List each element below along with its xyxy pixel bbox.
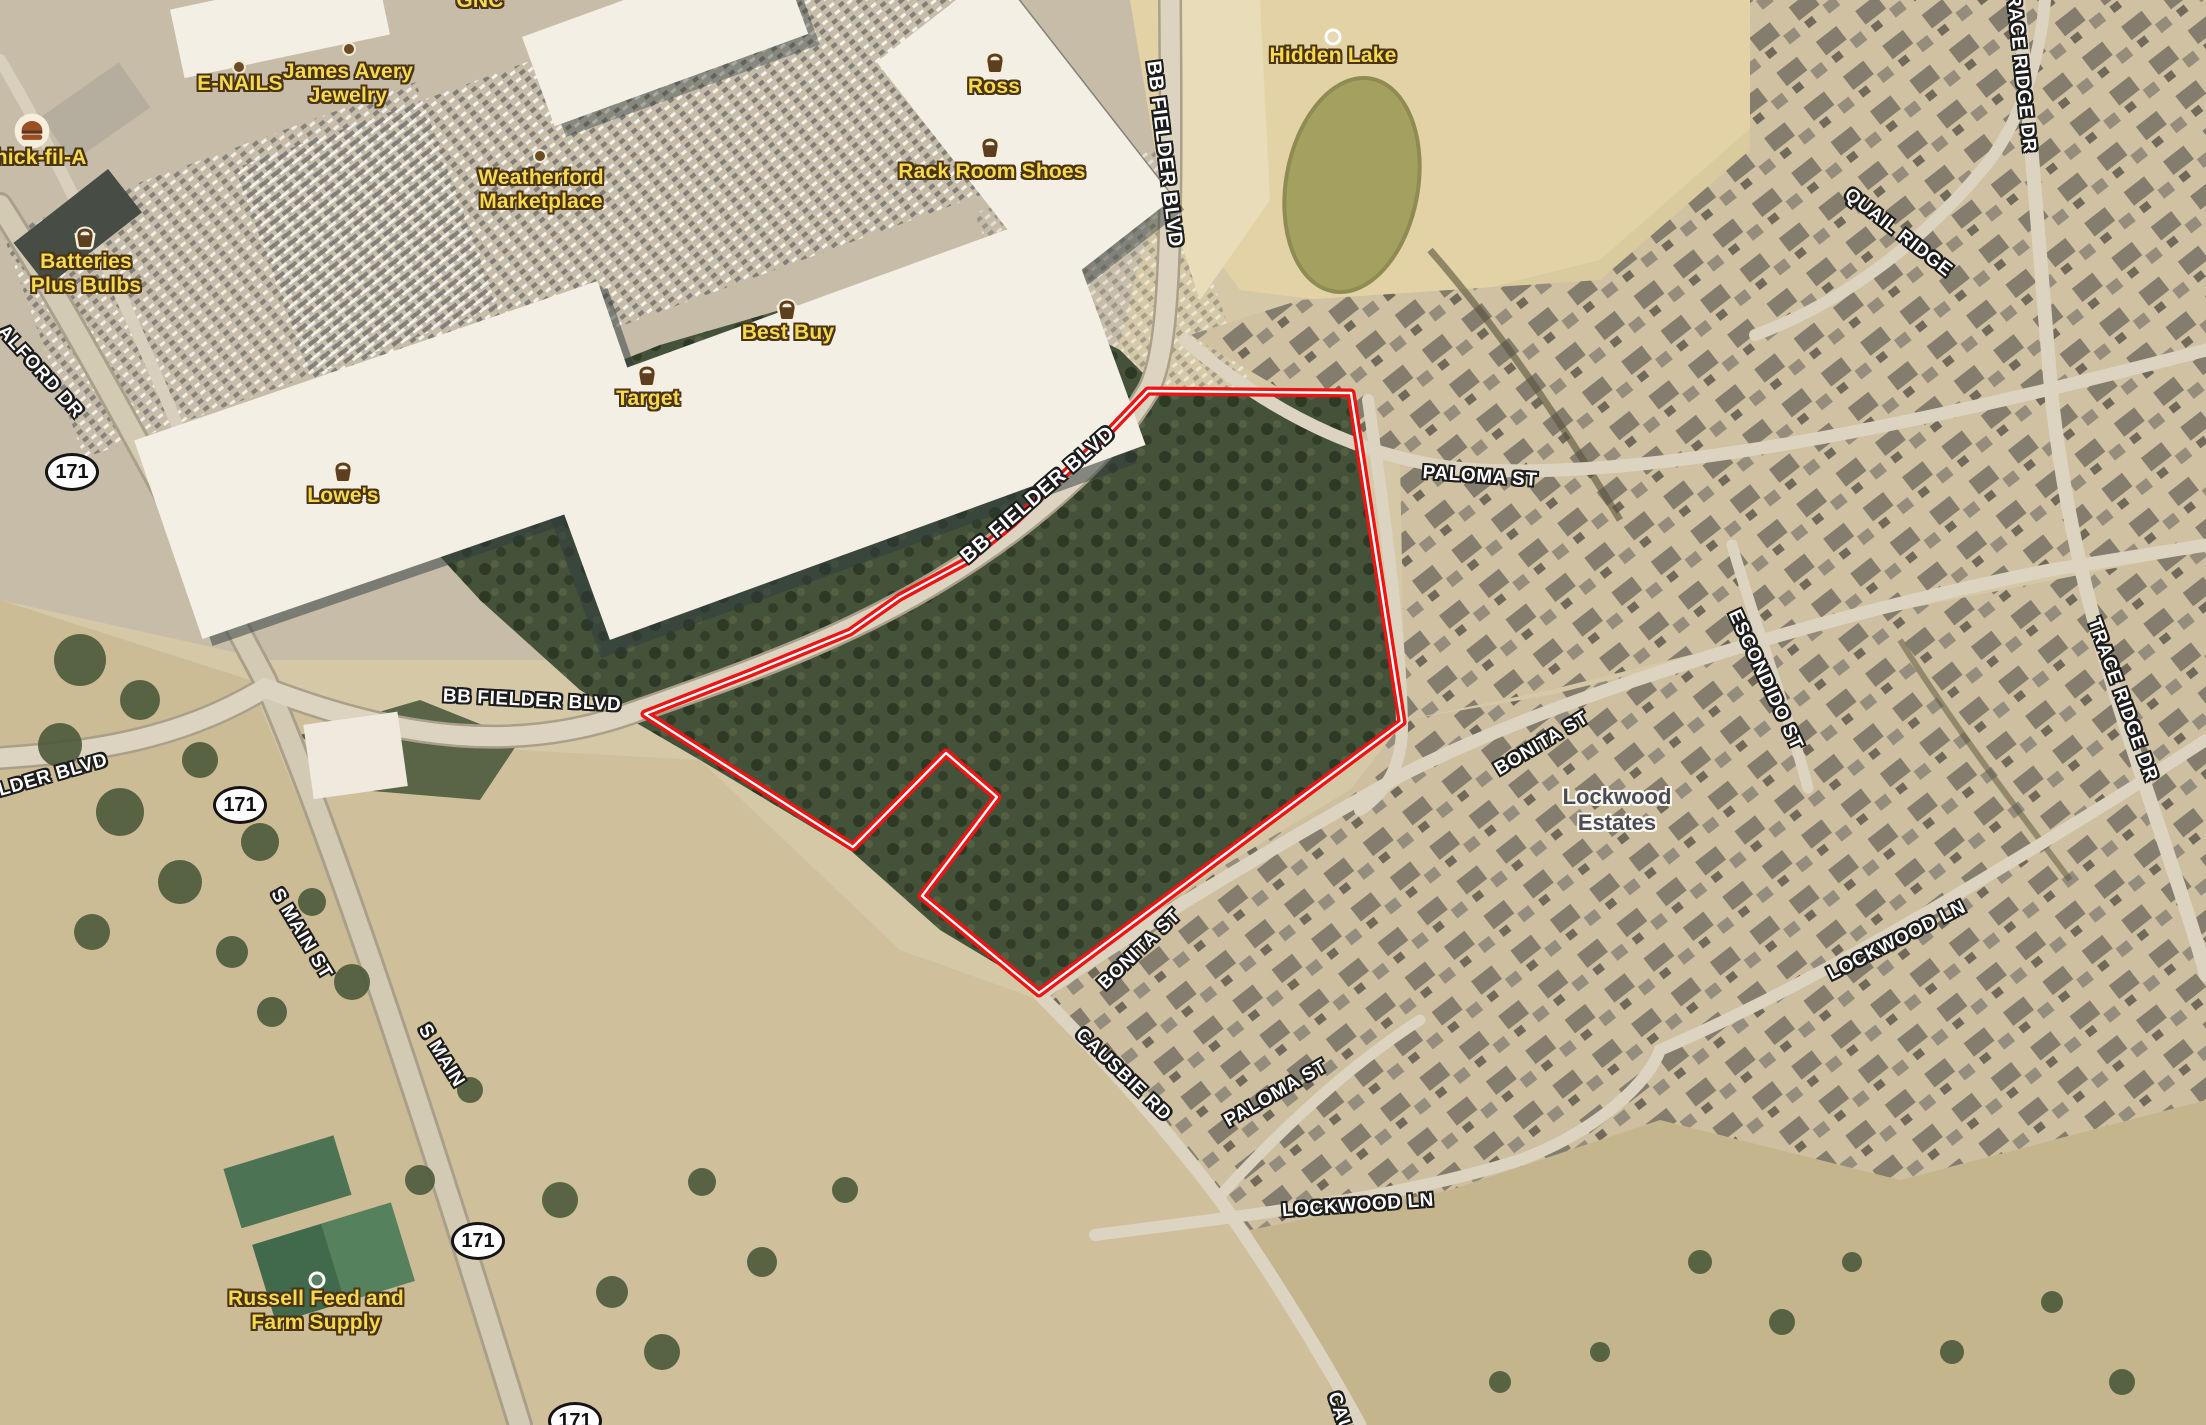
poi-label-e-nails: E-NAILS xyxy=(197,72,282,96)
poi-label-target: Target xyxy=(616,387,680,411)
place-label-line: Lockwood xyxy=(1563,784,1672,810)
place-label-lockwood-estates: Lockwood Estates xyxy=(1563,784,1672,836)
poi-label-line: Plus Bulbs xyxy=(31,274,142,298)
poi-label-best-buy: Best Buy xyxy=(742,321,835,345)
dot-marker xyxy=(533,149,547,163)
poi-label-line: Jewelry xyxy=(283,84,413,108)
poi-label-line: Russell Feed and xyxy=(228,1287,404,1311)
white-dot-marker xyxy=(1325,29,1342,46)
shopping-basket-icon xyxy=(70,222,100,252)
shopping-basket-icon xyxy=(772,294,802,324)
highway-shield-171: 171 xyxy=(45,453,99,491)
map-canvas[interactable]: GNC E-NAILS James Avery Jewelry Chick-fi… xyxy=(0,0,2206,1425)
poi-label-line: James Avery xyxy=(283,60,413,84)
poi-label-chick-fil-a: Chick-fil-A xyxy=(0,146,87,170)
poi-label-rack-room-shoes: Rack Room Shoes xyxy=(898,160,1085,184)
poi-label-lowes: Lowe's xyxy=(307,484,379,508)
poi-label-hidden-lake: Hidden Lake xyxy=(1269,44,1396,68)
poi-label-batteries-plus-bulbs: Batteries Plus Bulbs xyxy=(31,250,142,298)
shopping-basket-icon xyxy=(975,132,1005,162)
poi-label-james-avery: James Avery Jewelry xyxy=(283,60,413,108)
burger-icon xyxy=(13,112,51,150)
highway-shield-171: 171 xyxy=(213,786,267,824)
place-label-line: Estates xyxy=(1563,810,1672,836)
shopping-basket-icon xyxy=(328,456,358,486)
poi-label-line: Farm Supply xyxy=(228,1311,404,1335)
poi-label-line: Batteries xyxy=(31,250,142,274)
poi-label-line: Weatherford xyxy=(478,166,604,190)
shopping-basket-icon xyxy=(632,360,662,390)
poi-label-russell-feed: Russell Feed and Farm Supply xyxy=(228,1287,404,1335)
dot-marker xyxy=(342,42,356,56)
poi-label-weatherford-marketplace: Weatherford Marketplace xyxy=(478,166,604,214)
highway-shield-171: 171 xyxy=(451,1222,505,1260)
poi-label-gnc: GNC xyxy=(456,0,503,13)
poi-label-ross: Ross xyxy=(968,75,1020,99)
white-dot-marker xyxy=(309,1272,326,1289)
shopping-basket-icon xyxy=(980,47,1010,77)
poi-label-line: Marketplace xyxy=(478,190,604,214)
